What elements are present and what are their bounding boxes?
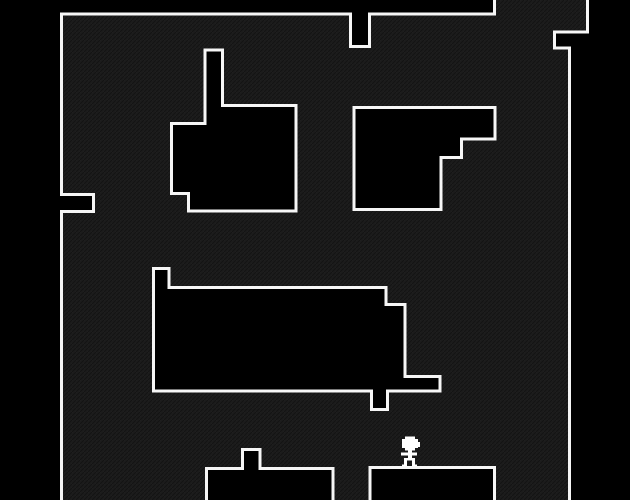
player-sprite-pixel [402,465,407,467]
player-sprite-pixel [412,465,417,467]
player-sprite-pixel [417,442,420,447]
room-interior [60,0,589,500]
player-sprite-pixel [402,439,418,448]
game-scene [0,0,630,500]
game-viewport[interactable] [0,0,630,500]
obstacle-bottom-right-platform [370,468,495,500]
